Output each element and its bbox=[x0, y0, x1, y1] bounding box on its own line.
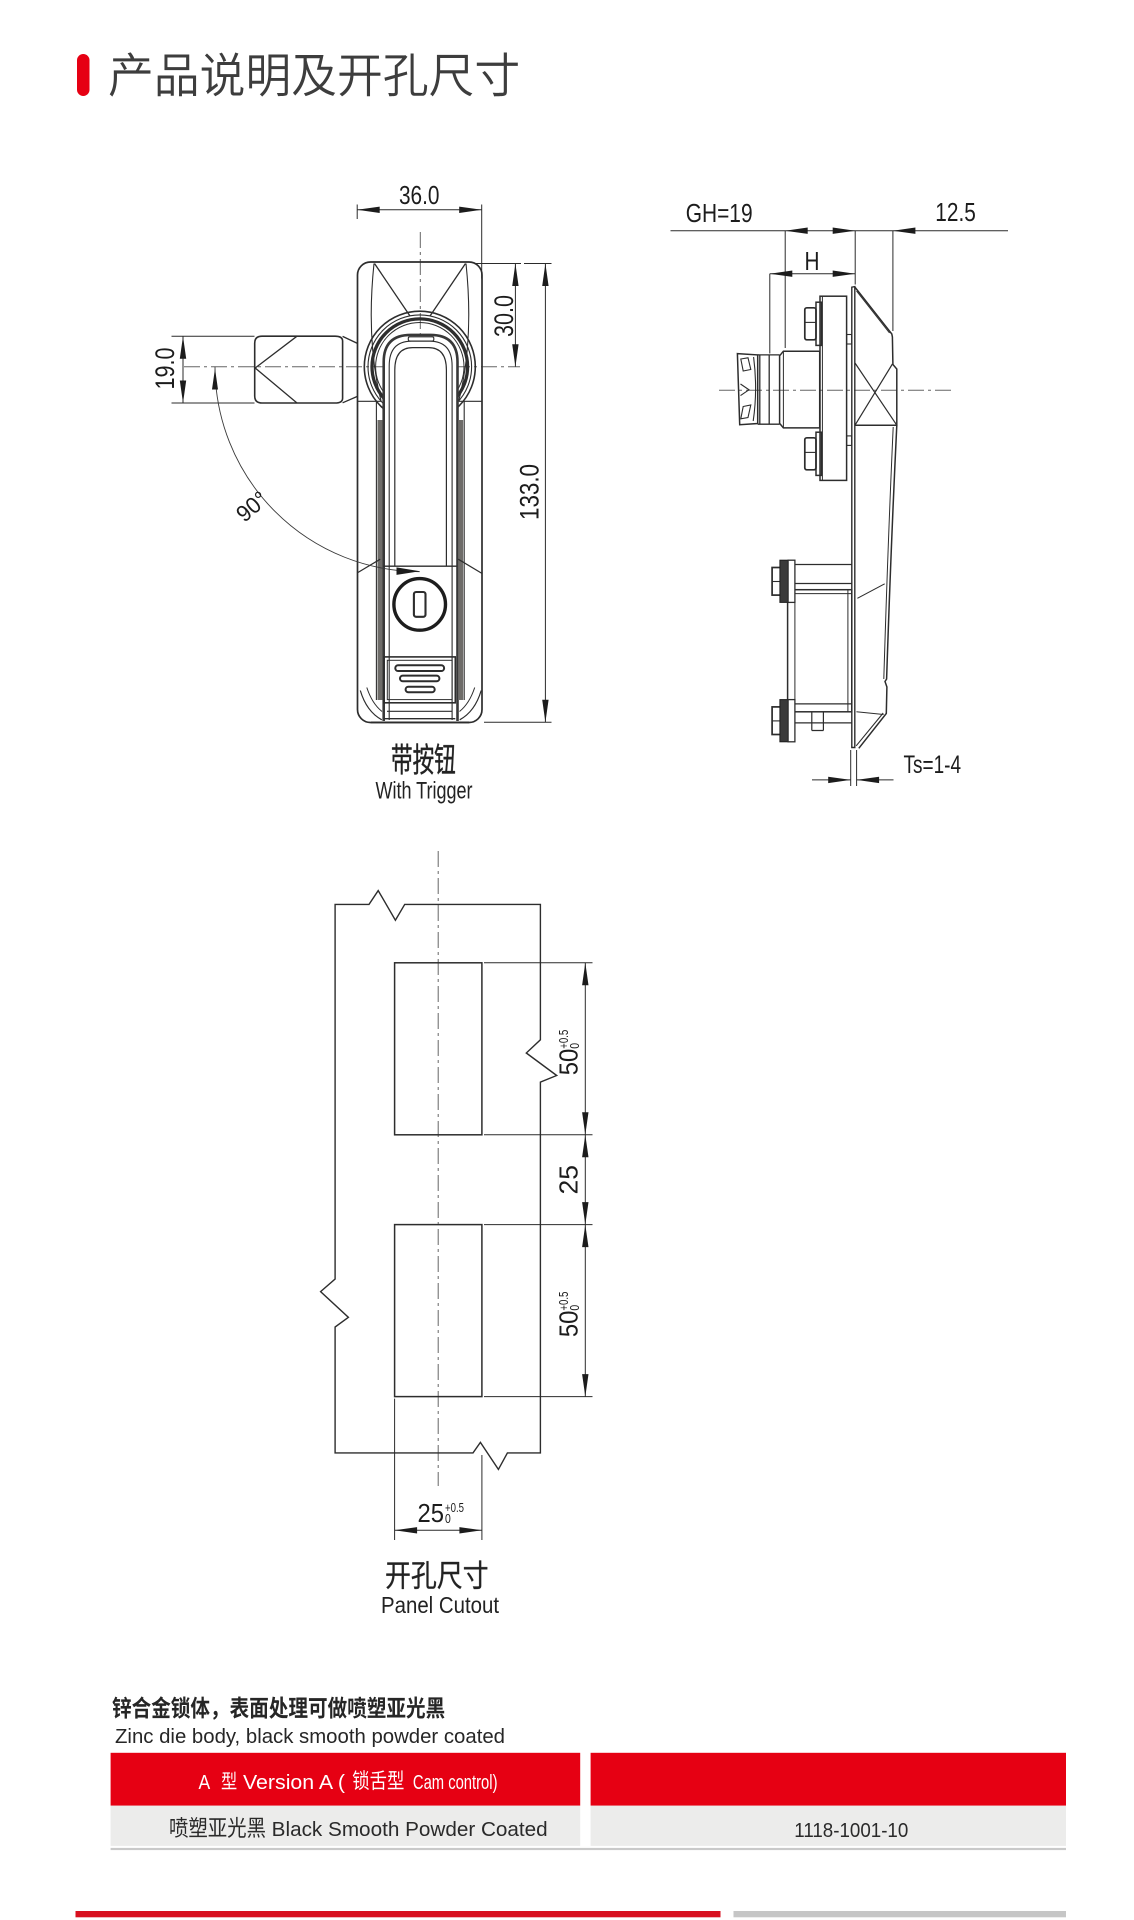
svg-text:0: 0 bbox=[568, 1043, 582, 1049]
svg-text:25: 25 bbox=[418, 1498, 445, 1528]
svg-text:36.0: 36.0 bbox=[399, 180, 440, 210]
svg-text:H: H bbox=[805, 246, 820, 276]
svg-text:25: 25 bbox=[554, 1165, 584, 1195]
svg-text:133.0: 133.0 bbox=[515, 464, 545, 520]
svg-text:Version A (: Version A ( bbox=[243, 1772, 345, 1794]
svg-text:1118-1001-10: 1118-1001-10 bbox=[794, 1819, 908, 1842]
svg-text:50: 50 bbox=[554, 1049, 584, 1076]
svg-text:GH=19: GH=19 bbox=[686, 198, 753, 228]
svg-text:50: 50 bbox=[554, 1311, 584, 1338]
svg-text:Panel Cutout: Panel Cutout bbox=[381, 1592, 500, 1618]
svg-text:With Trigger: With Trigger bbox=[376, 778, 473, 805]
svg-text:Cam control): Cam control) bbox=[413, 1772, 498, 1794]
svg-text:A: A bbox=[199, 1772, 211, 1794]
svg-text:Black Smooth Powder Coated: Black Smooth Powder Coated bbox=[272, 1819, 548, 1841]
svg-text:0: 0 bbox=[445, 1512, 451, 1526]
svg-text:30.0: 30.0 bbox=[489, 295, 519, 337]
svg-text:19.0: 19.0 bbox=[150, 348, 180, 390]
svg-text:Zinc die body, black smooth po: Zinc die body, black smooth powder coate… bbox=[115, 1725, 505, 1748]
svg-text:0: 0 bbox=[568, 1305, 582, 1311]
svg-text:Ts=1-4: Ts=1-4 bbox=[904, 751, 962, 779]
svg-text:12.5: 12.5 bbox=[935, 197, 976, 227]
